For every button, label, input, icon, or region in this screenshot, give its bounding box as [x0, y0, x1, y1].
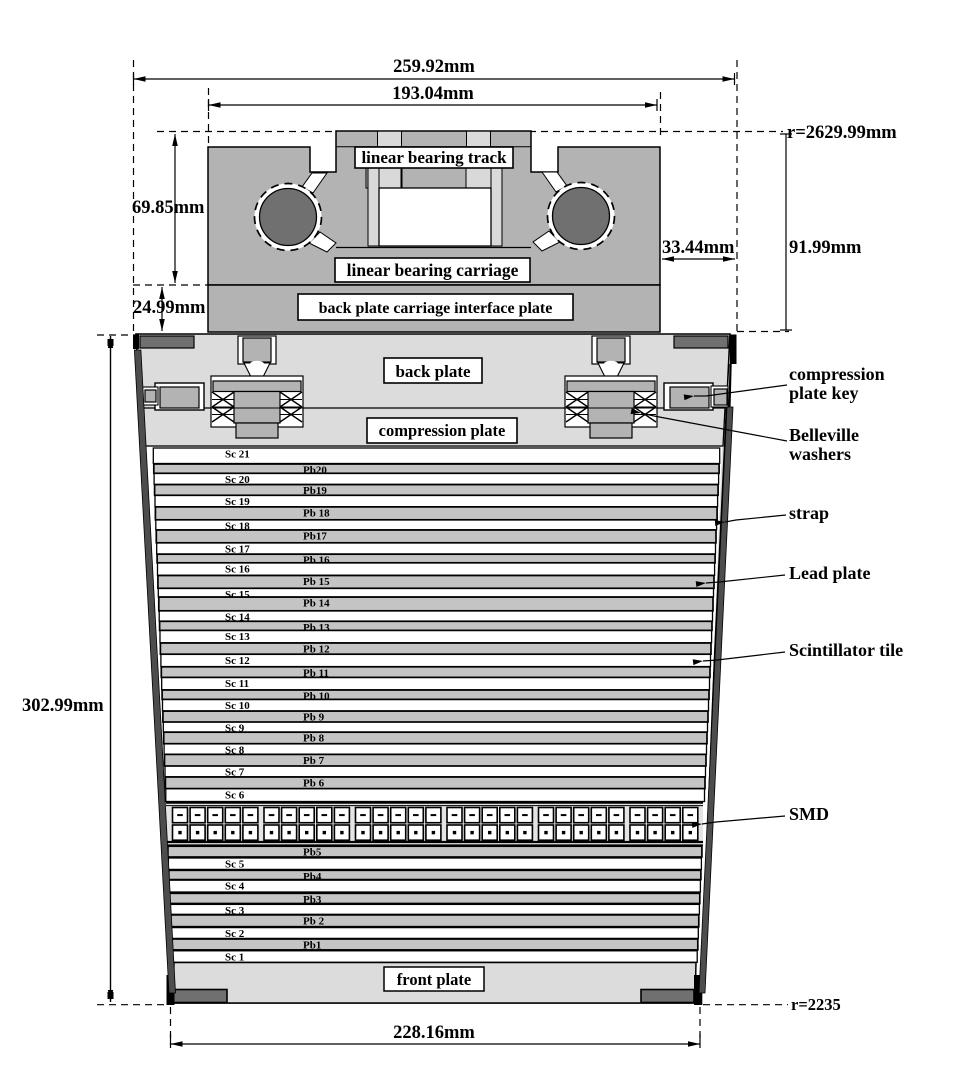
- svg-text:front plate: front plate: [397, 970, 471, 989]
- svg-text:Pb 15: Pb 15: [303, 576, 330, 588]
- svg-text:Pb17: Pb17: [303, 531, 327, 543]
- svg-text:compression: compression: [789, 364, 885, 384]
- svg-text:Sc 12: Sc 12: [225, 655, 250, 667]
- svg-text:Pb 14: Pb 14: [303, 598, 330, 610]
- svg-text:SMD: SMD: [789, 804, 829, 824]
- svg-text:Lead plate: Lead plate: [789, 563, 871, 583]
- svg-text:24.99mm: 24.99mm: [133, 298, 206, 318]
- svg-text:259.92mm: 259.92mm: [393, 57, 475, 77]
- svg-text:Pb 2: Pb 2: [303, 915, 325, 927]
- svg-text:Sc 4: Sc 4: [225, 881, 245, 893]
- svg-text:Pb 12: Pb 12: [303, 644, 330, 656]
- svg-text:compression plate: compression plate: [379, 421, 506, 440]
- svg-text:Sc 21: Sc 21: [225, 449, 250, 461]
- svg-text:back plate: back plate: [395, 362, 471, 381]
- svg-text:back plate carriage interface: back plate carriage interface plate: [319, 300, 553, 317]
- svg-text:33.44mm: 33.44mm: [662, 238, 735, 258]
- svg-text:strap: strap: [789, 503, 829, 523]
- svg-text:Sc 16: Sc 16: [225, 564, 250, 576]
- svg-text:Pb 8: Pb 8: [303, 733, 325, 745]
- svg-text:Pb5: Pb5: [303, 847, 322, 859]
- svg-text:linear bearing track: linear bearing track: [361, 148, 507, 167]
- svg-text:69.85mm: 69.85mm: [132, 198, 205, 218]
- svg-text:Pb 18: Pb 18: [303, 507, 330, 519]
- svg-text:Sc 6: Sc 6: [225, 789, 245, 801]
- svg-text:Sc 11: Sc 11: [225, 678, 249, 690]
- svg-text:302.99mm: 302.99mm: [22, 696, 104, 716]
- svg-text:Sc 1: Sc 1: [225, 951, 244, 963]
- svg-text:r=2235: r=2235: [791, 995, 841, 1014]
- svg-text:plate key: plate key: [789, 383, 859, 403]
- svg-text:Belleville: Belleville: [789, 425, 859, 445]
- svg-text:r=2629.99mm: r=2629.99mm: [787, 123, 897, 143]
- svg-text:Pb1: Pb1: [303, 940, 321, 952]
- svg-text:linear bearing carriage: linear bearing carriage: [347, 260, 519, 280]
- svg-text:Pb 7: Pb 7: [303, 755, 325, 767]
- svg-text:Scintillator tile: Scintillator tile: [789, 640, 903, 660]
- svg-text:washers: washers: [789, 444, 851, 464]
- svg-text:91.99mm: 91.99mm: [789, 238, 862, 258]
- svg-text:228.16mm: 228.16mm: [393, 1023, 475, 1043]
- svg-text:193.04mm: 193.04mm: [392, 84, 474, 104]
- svg-text:Sc 13: Sc 13: [225, 631, 250, 643]
- svg-text:Sc 5: Sc 5: [225, 859, 245, 871]
- svg-text:Pb 6: Pb 6: [303, 778, 325, 790]
